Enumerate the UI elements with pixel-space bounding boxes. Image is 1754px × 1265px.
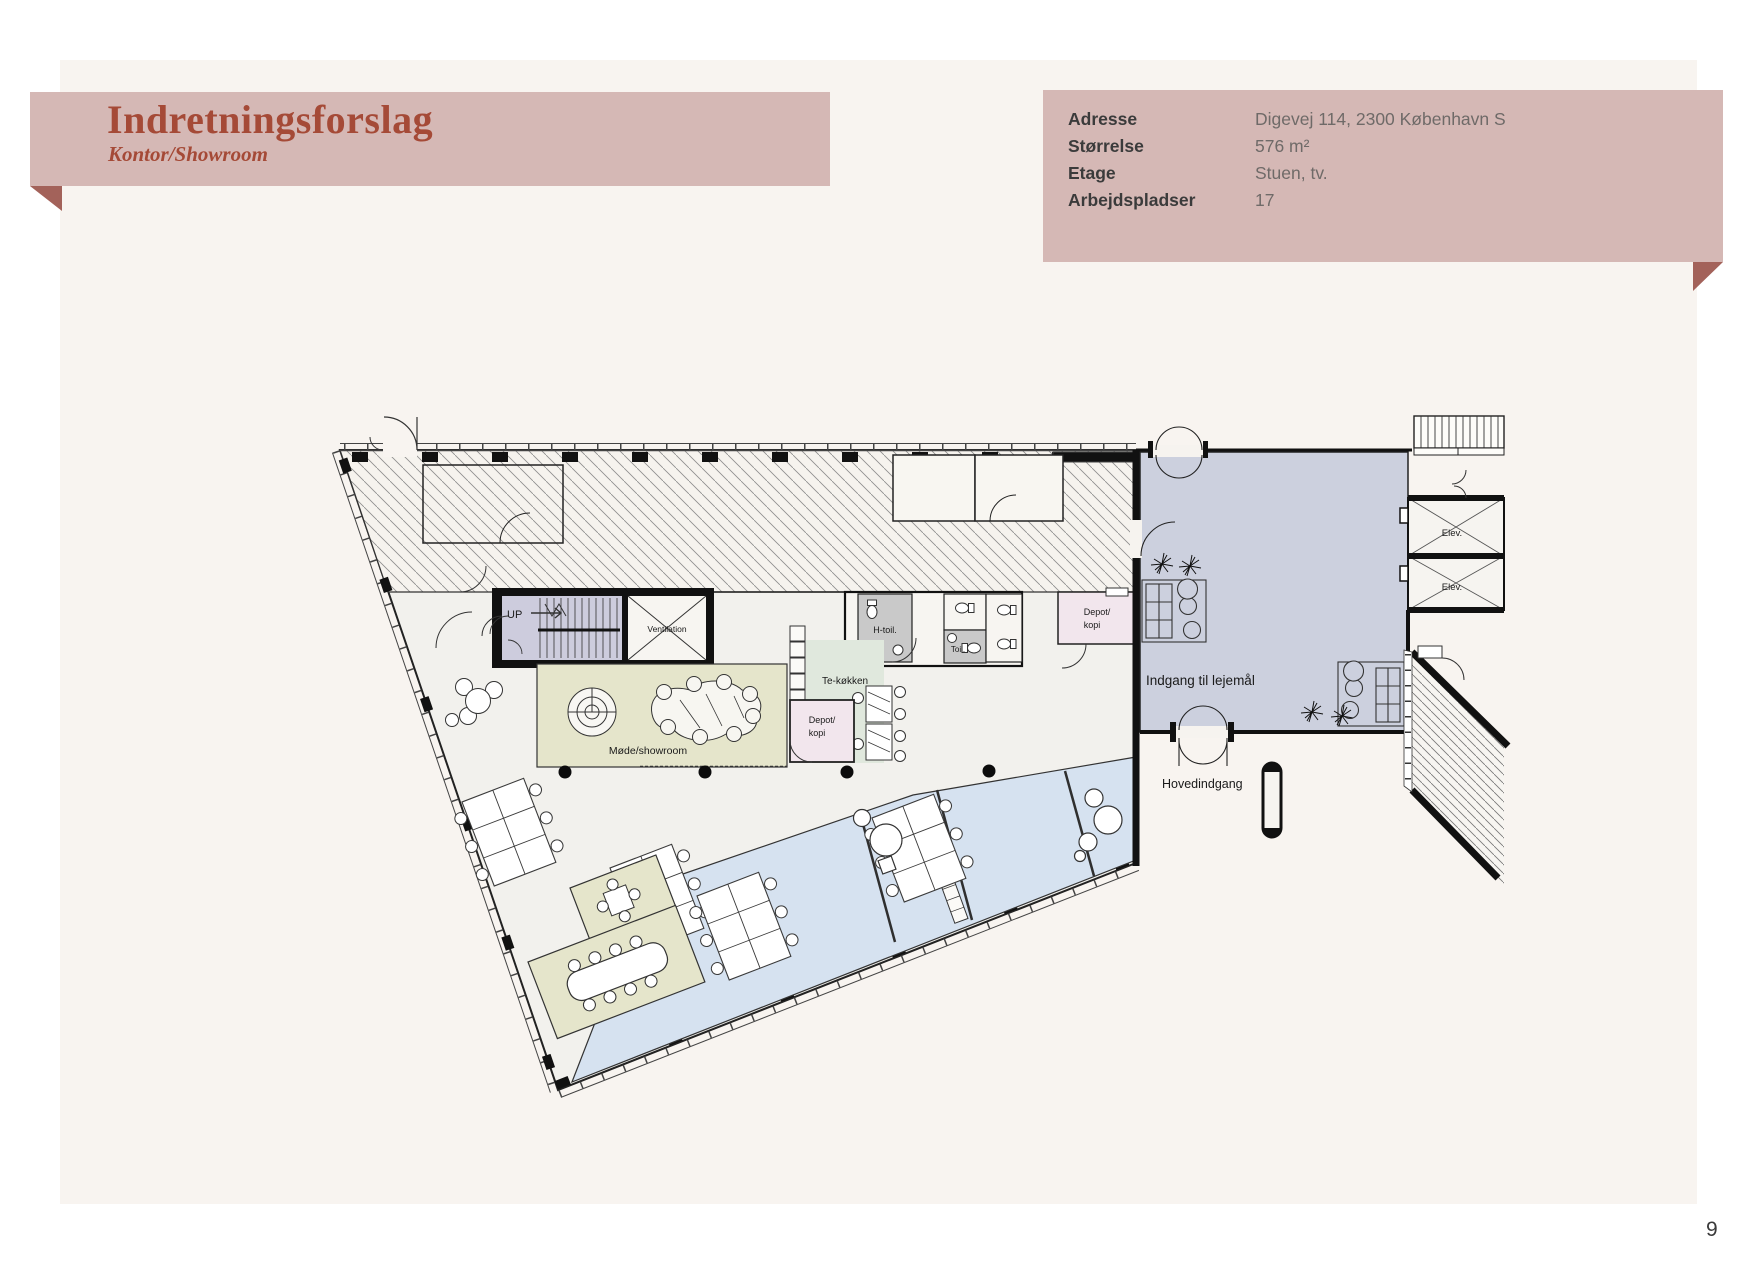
tenancy-entrance-label: Indgang til lejemål bbox=[1146, 673, 1255, 688]
exterior-stair bbox=[1414, 416, 1504, 455]
stairwell bbox=[502, 596, 622, 660]
ventilation-label: Ventilation bbox=[647, 624, 686, 634]
depot-copy-room-1: Depot/ kopi bbox=[790, 700, 854, 762]
info-value: Digevej 114, 2300 København S bbox=[1255, 106, 1506, 133]
column-pill bbox=[1263, 763, 1281, 837]
depot2-label-line2: kopi bbox=[1084, 620, 1101, 630]
info-label: Arbejdspladser bbox=[1068, 187, 1255, 214]
stair-ventilation-block: UP Ventilation bbox=[490, 588, 714, 668]
showroom-label: Møde/showroom bbox=[609, 745, 687, 757]
title-banner: Indretningsforslag Kontor/Showroom bbox=[30, 92, 830, 186]
elevator-label-1: Elev. bbox=[1442, 528, 1462, 539]
page-subtitle: Kontor/Showroom bbox=[30, 142, 830, 166]
info-value: Stuen, tv. bbox=[1255, 160, 1328, 187]
depot1-label-line1: Depot/ bbox=[809, 715, 836, 725]
spiral-display bbox=[568, 688, 616, 736]
depot2-label-line1: Depot/ bbox=[1084, 607, 1111, 617]
property-info-panel: Adresse Digevej 114, 2300 København S St… bbox=[1043, 90, 1723, 262]
h-toilet-label: H-toil. bbox=[873, 625, 897, 635]
depot1-label-line2: kopi bbox=[809, 728, 826, 738]
meeting-showroom-room: Møde/showroom bbox=[537, 664, 787, 767]
info-row-workstations: Arbejdspladser 17 bbox=[1068, 187, 1506, 214]
info-value: 17 bbox=[1255, 187, 1274, 214]
toilet-label: Toil. bbox=[951, 645, 965, 654]
info-label: Adresse bbox=[1068, 106, 1255, 133]
info-label: Størrelse bbox=[1068, 133, 1255, 160]
sink-icon bbox=[893, 645, 903, 655]
door-arc bbox=[1442, 658, 1464, 680]
info-value: 576 m² bbox=[1255, 133, 1309, 160]
info-row-size: Størrelse 576 m² bbox=[1068, 133, 1506, 160]
adjacent-wing bbox=[1404, 610, 1508, 884]
tea-kitchen-label: Te-køkken bbox=[822, 676, 868, 687]
elevator-block: Elev. Elev. bbox=[1400, 470, 1504, 610]
main-entrance-label: Hovedindgang bbox=[1162, 777, 1243, 791]
info-row-floor: Etage Stuen, tv. bbox=[1068, 160, 1506, 187]
stair-up-label: UP bbox=[507, 609, 522, 621]
page-number: 9 bbox=[1706, 1218, 1746, 1242]
page-title: Indretningsforslag bbox=[30, 92, 830, 142]
info-label: Etage bbox=[1068, 160, 1255, 187]
door-arc bbox=[1452, 470, 1466, 498]
elevator-label-2: Elev. bbox=[1442, 582, 1462, 593]
sink-icon bbox=[948, 634, 957, 643]
info-row-address: Adresse Digevej 114, 2300 København S bbox=[1068, 106, 1506, 133]
